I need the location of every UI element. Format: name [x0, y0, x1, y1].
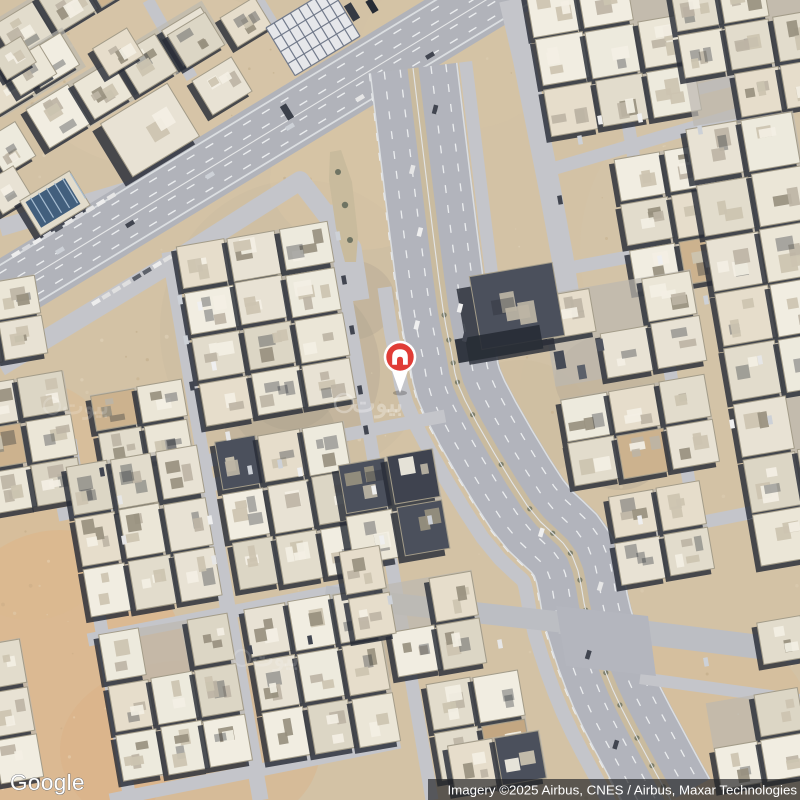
svg-text:Google: Google [10, 770, 85, 795]
svg-text:بيوت: بيوت [252, 645, 299, 673]
svg-text:بيوت: بيوت [62, 393, 109, 421]
svg-text:Imagery ©2025 Airbus, CNES / A: Imagery ©2025 Airbus, CNES / Airbus, Max… [447, 783, 797, 798]
